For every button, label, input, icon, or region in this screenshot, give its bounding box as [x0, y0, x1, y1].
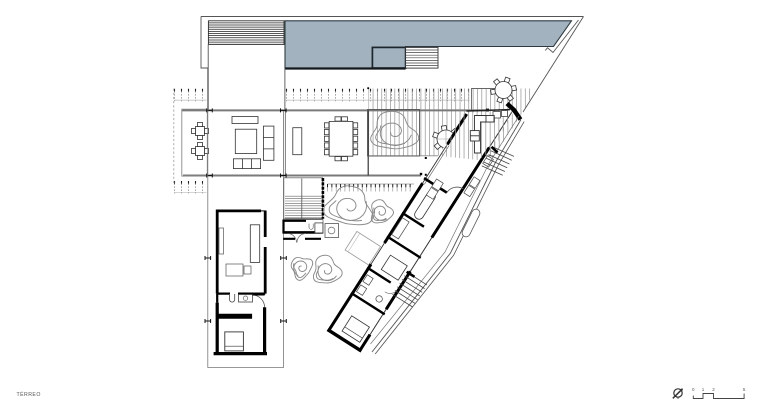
- svg-text:TÉRREO: TÉRREO: [17, 391, 41, 398]
